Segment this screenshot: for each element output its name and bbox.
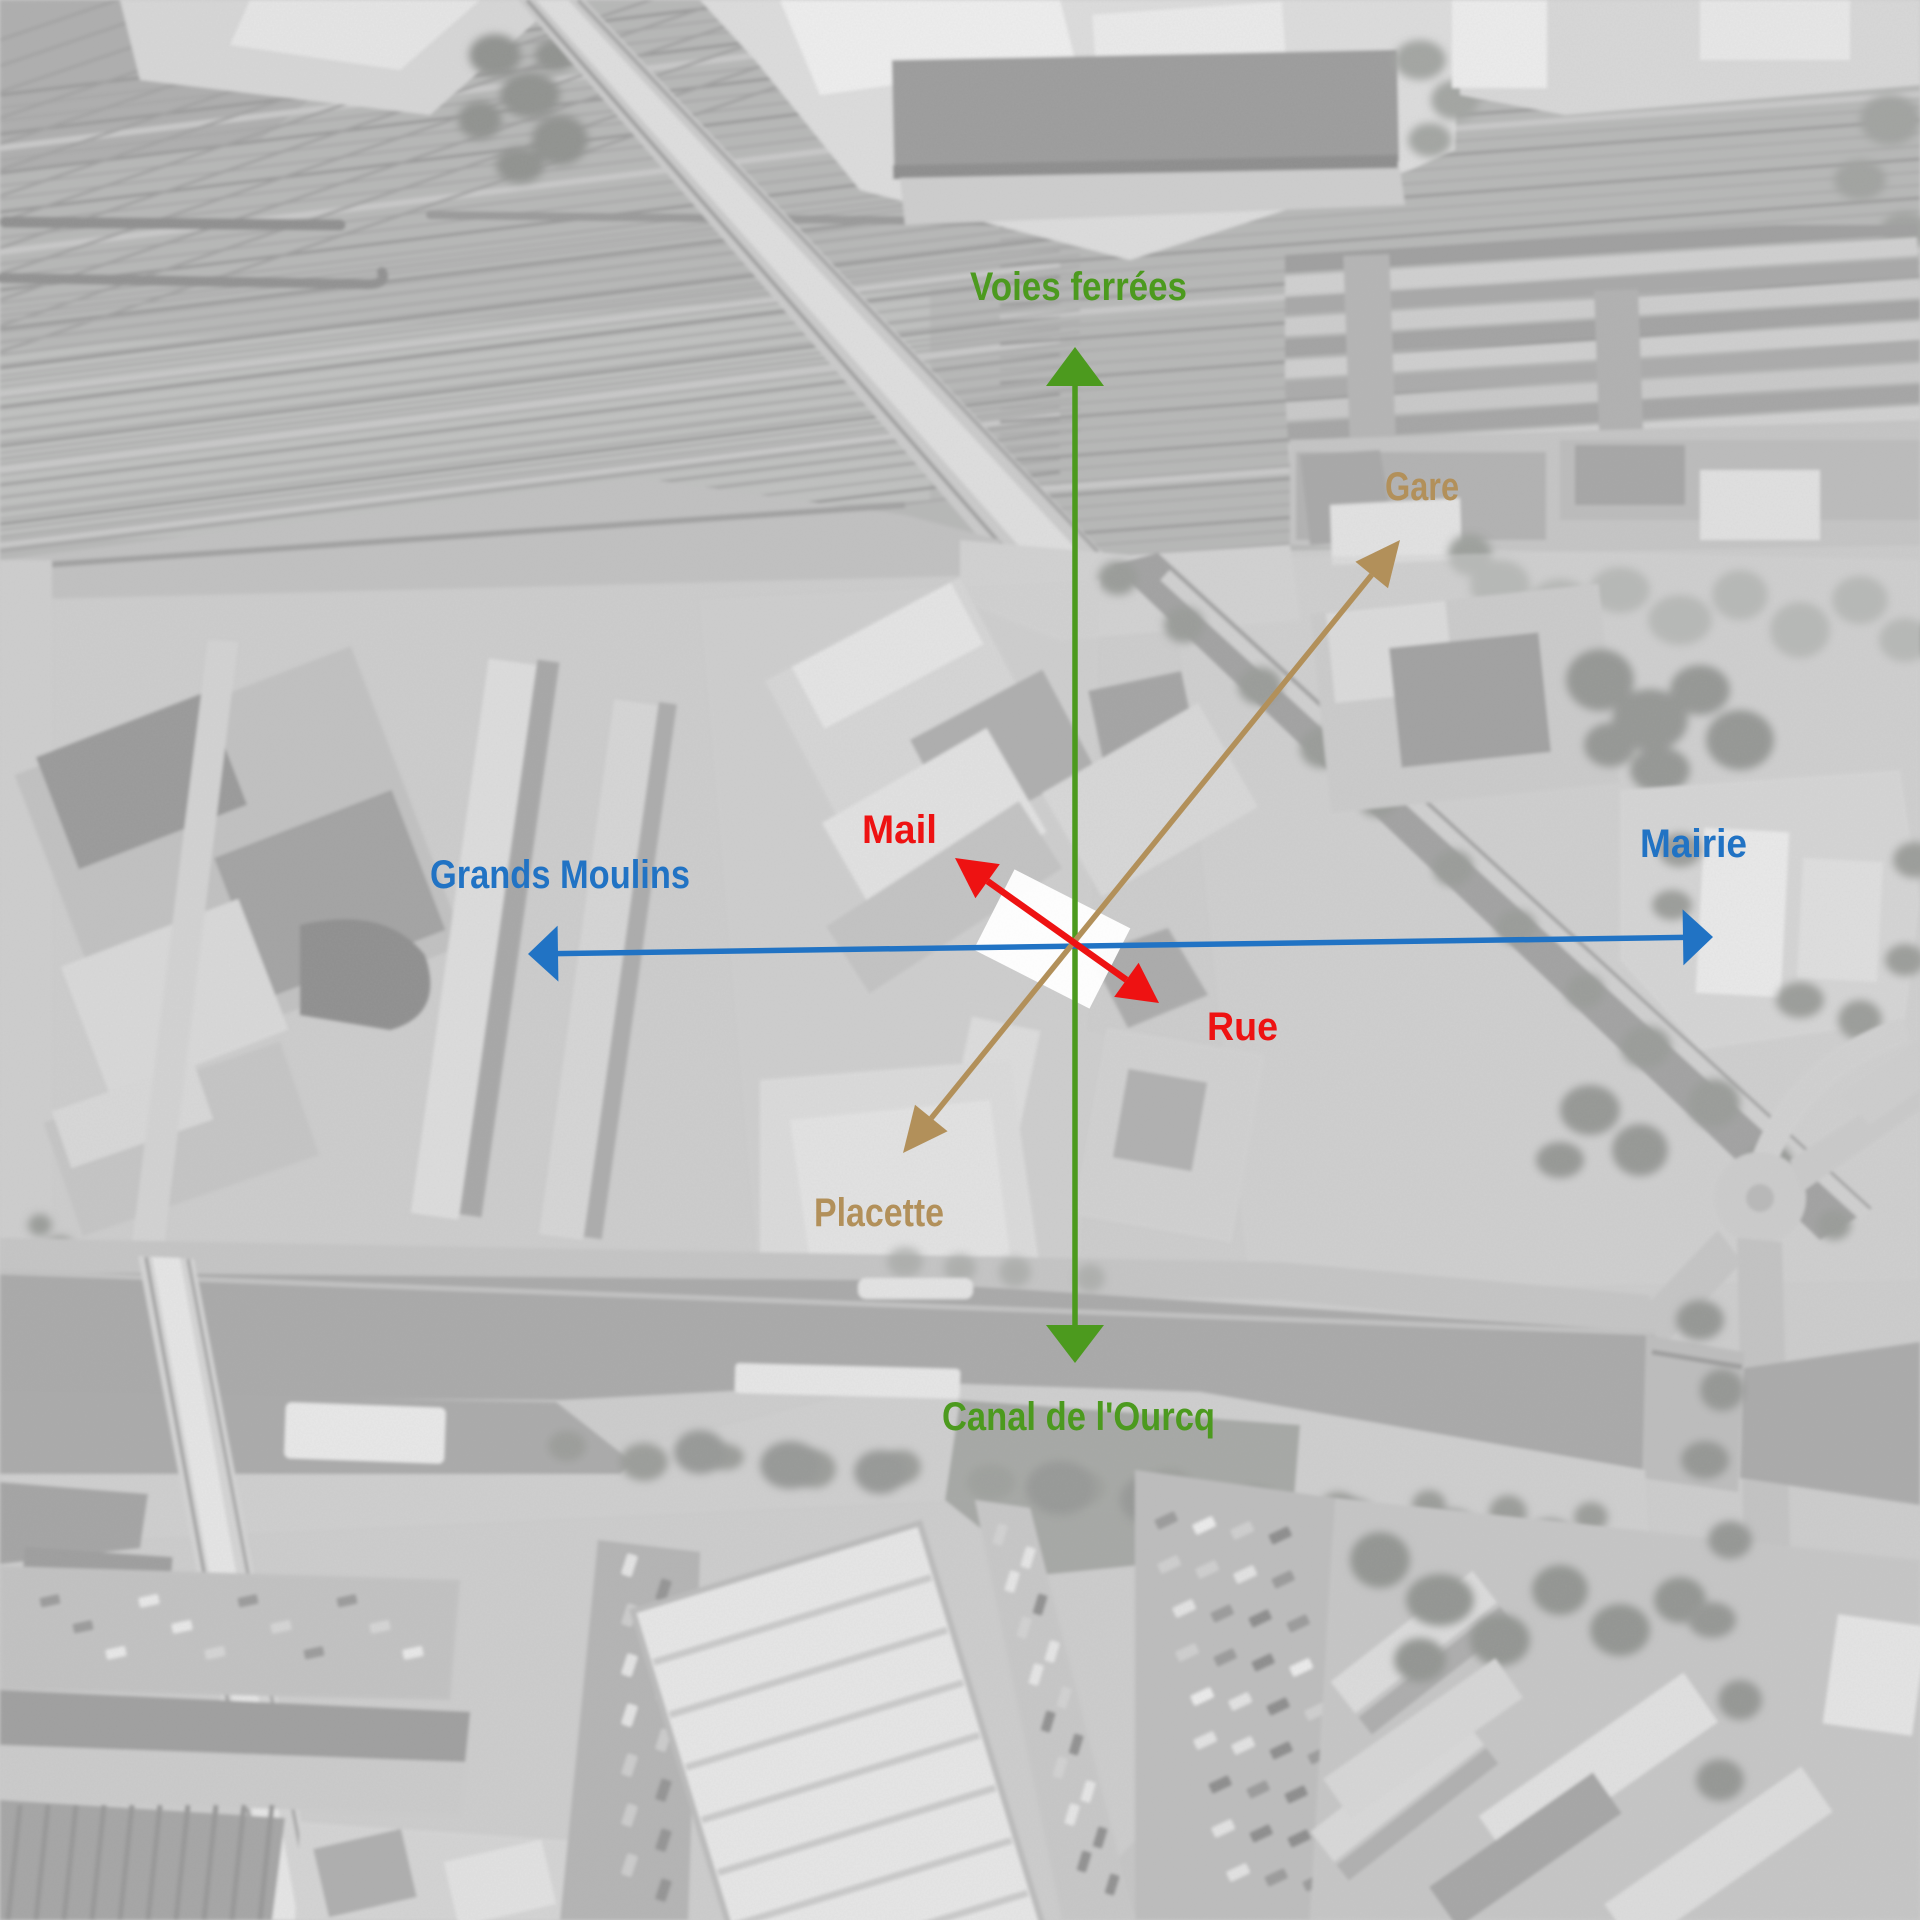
svg-text:Gare: Gare [1385,465,1459,509]
svg-text:Rue: Rue [1207,1005,1278,1049]
svg-text:Canal de l'Ourcq: Canal de l'Ourcq [942,1395,1215,1439]
svg-text:Mail: Mail [862,808,937,852]
svg-text:Grands Moulins: Grands Moulins [430,853,690,897]
svg-text:Mairie: Mairie [1640,822,1747,866]
svg-text:Voies ferrées: Voies ferrées [970,265,1187,309]
svg-text:Placette: Placette [814,1191,944,1235]
